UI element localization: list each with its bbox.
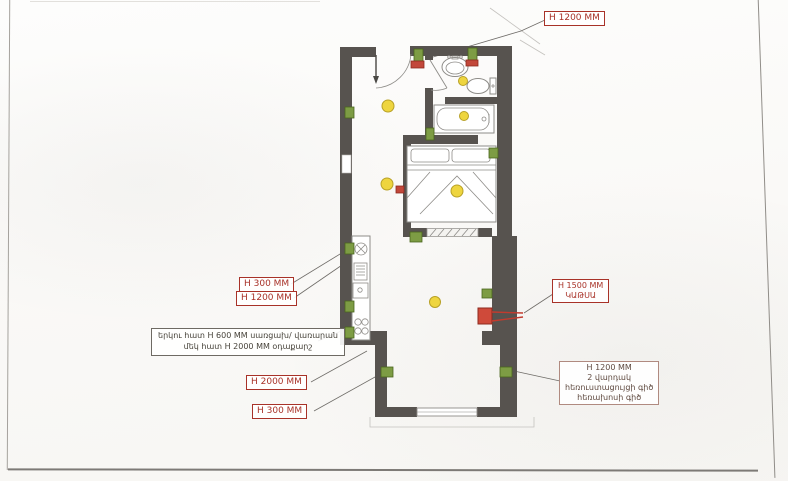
switch-icon (396, 186, 404, 193)
wall-niche (342, 155, 351, 173)
entry-door (373, 54, 411, 88)
outlet-icon (410, 232, 422, 242)
outlet-icon (345, 107, 354, 118)
wash-basin-icon (442, 56, 468, 77)
ceiling-light-icon (459, 77, 468, 86)
floor-plan-drawing (0, 0, 788, 481)
label-height-bottom-1: H 2000 MM (246, 375, 307, 390)
ceiling-light-icon (451, 185, 463, 197)
boiler-label-height: H 1500 MM (558, 281, 603, 291)
ceiling-light-icon (430, 297, 441, 308)
label-sockets: H 1200 MM 2 վարդակ հեռուստացույցի գիծ հե… (559, 361, 659, 405)
scanned-floor-plan-page: H 1200 MM H 300 MM H 1200 MM երկու հատ H… (0, 0, 788, 481)
appliance-note-line-2: մեկ հատ H 2000 MM օդաքարշ (158, 342, 338, 353)
label-height-kitchen-1: H 300 MM (239, 277, 294, 292)
outlet-icon (345, 243, 354, 254)
outlet-icon (468, 48, 477, 60)
switch-icon (411, 61, 424, 68)
outlet-icon (345, 327, 354, 338)
label-height-kitchen-2: H 1200 MM (236, 291, 297, 306)
outlet-icon (489, 148, 498, 158)
switch-icon (466, 60, 478, 66)
sockets-label-tv-line: հեռուստացույցի գիծ (565, 383, 653, 393)
label-appliance-note: երկու հատ H 600 MM սառցախ/ վառարան մեկ հ… (151, 328, 345, 356)
ceiling-light-icon (460, 112, 469, 121)
outlet-icon (426, 128, 434, 140)
sockets-label-count: 2 վարդակ (565, 373, 653, 383)
boiler-label-name: ԿԱԹՍԱ (558, 291, 603, 301)
sockets-label-height: H 1200 MM (565, 363, 653, 373)
door-swing-arrow-icon (373, 76, 379, 84)
appliance-note-line-1: երկու հատ H 600 MM սառցախ/ վառարան (158, 331, 338, 342)
kitchen-counter (352, 236, 370, 340)
bedroom-partition-window (427, 229, 478, 237)
outlet-icon (482, 289, 492, 298)
ceiling-light-icon (382, 100, 394, 112)
sockets-label-phone-line: հեռախոսի գիծ (565, 393, 653, 403)
outlet-icon (500, 367, 512, 377)
label-height-top: H 1200 MM (544, 11, 605, 26)
label-height-bottom-2: H 300 MM (252, 404, 307, 419)
toilet-icon (467, 78, 496, 94)
outlet-icon (381, 367, 393, 377)
outlet-icon (345, 301, 354, 312)
ceiling-light-icon (381, 178, 393, 190)
outlet-icon (414, 49, 423, 61)
label-boiler: H 1500 MM ԿԱԹՍԱ (552, 279, 609, 303)
double-bed-icon (407, 146, 496, 222)
